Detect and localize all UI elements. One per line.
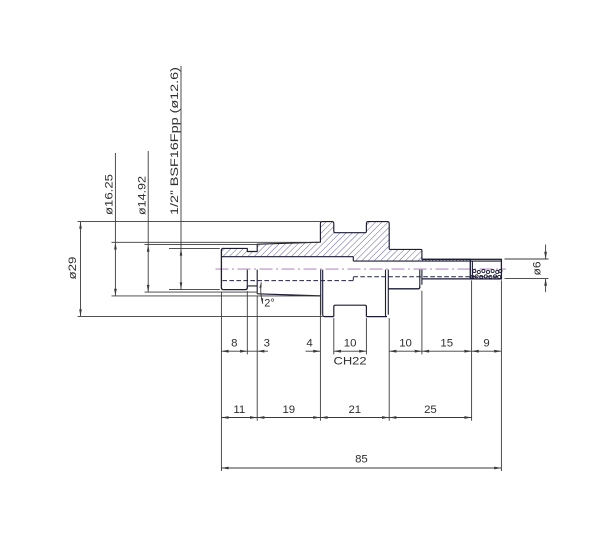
svg-text:15: 15 [440,338,453,350]
svg-text:1/2” BSF16Fpp (ø12.6): 1/2” BSF16Fpp (ø12.6) [169,67,181,215]
svg-text:21: 21 [348,404,361,416]
svg-text:11: 11 [233,404,245,416]
svg-text:2°: 2° [264,298,275,310]
svg-text:25: 25 [424,404,437,416]
svg-text:10: 10 [399,338,412,350]
svg-text:ø16.25: ø16.25 [104,174,116,215]
svg-text:CH22: CH22 [334,356,367,368]
svg-text:10: 10 [344,338,357,350]
svg-text:9: 9 [483,338,489,350]
svg-text:8: 8 [231,338,237,350]
svg-text:19: 19 [282,404,295,416]
svg-text:85: 85 [355,454,368,466]
svg-text:3: 3 [264,338,270,350]
svg-text:ø6: ø6 [532,262,544,276]
svg-text:4: 4 [306,338,312,350]
svg-text:ø29: ø29 [67,257,79,280]
svg-text:ø14.92: ø14.92 [136,176,148,215]
